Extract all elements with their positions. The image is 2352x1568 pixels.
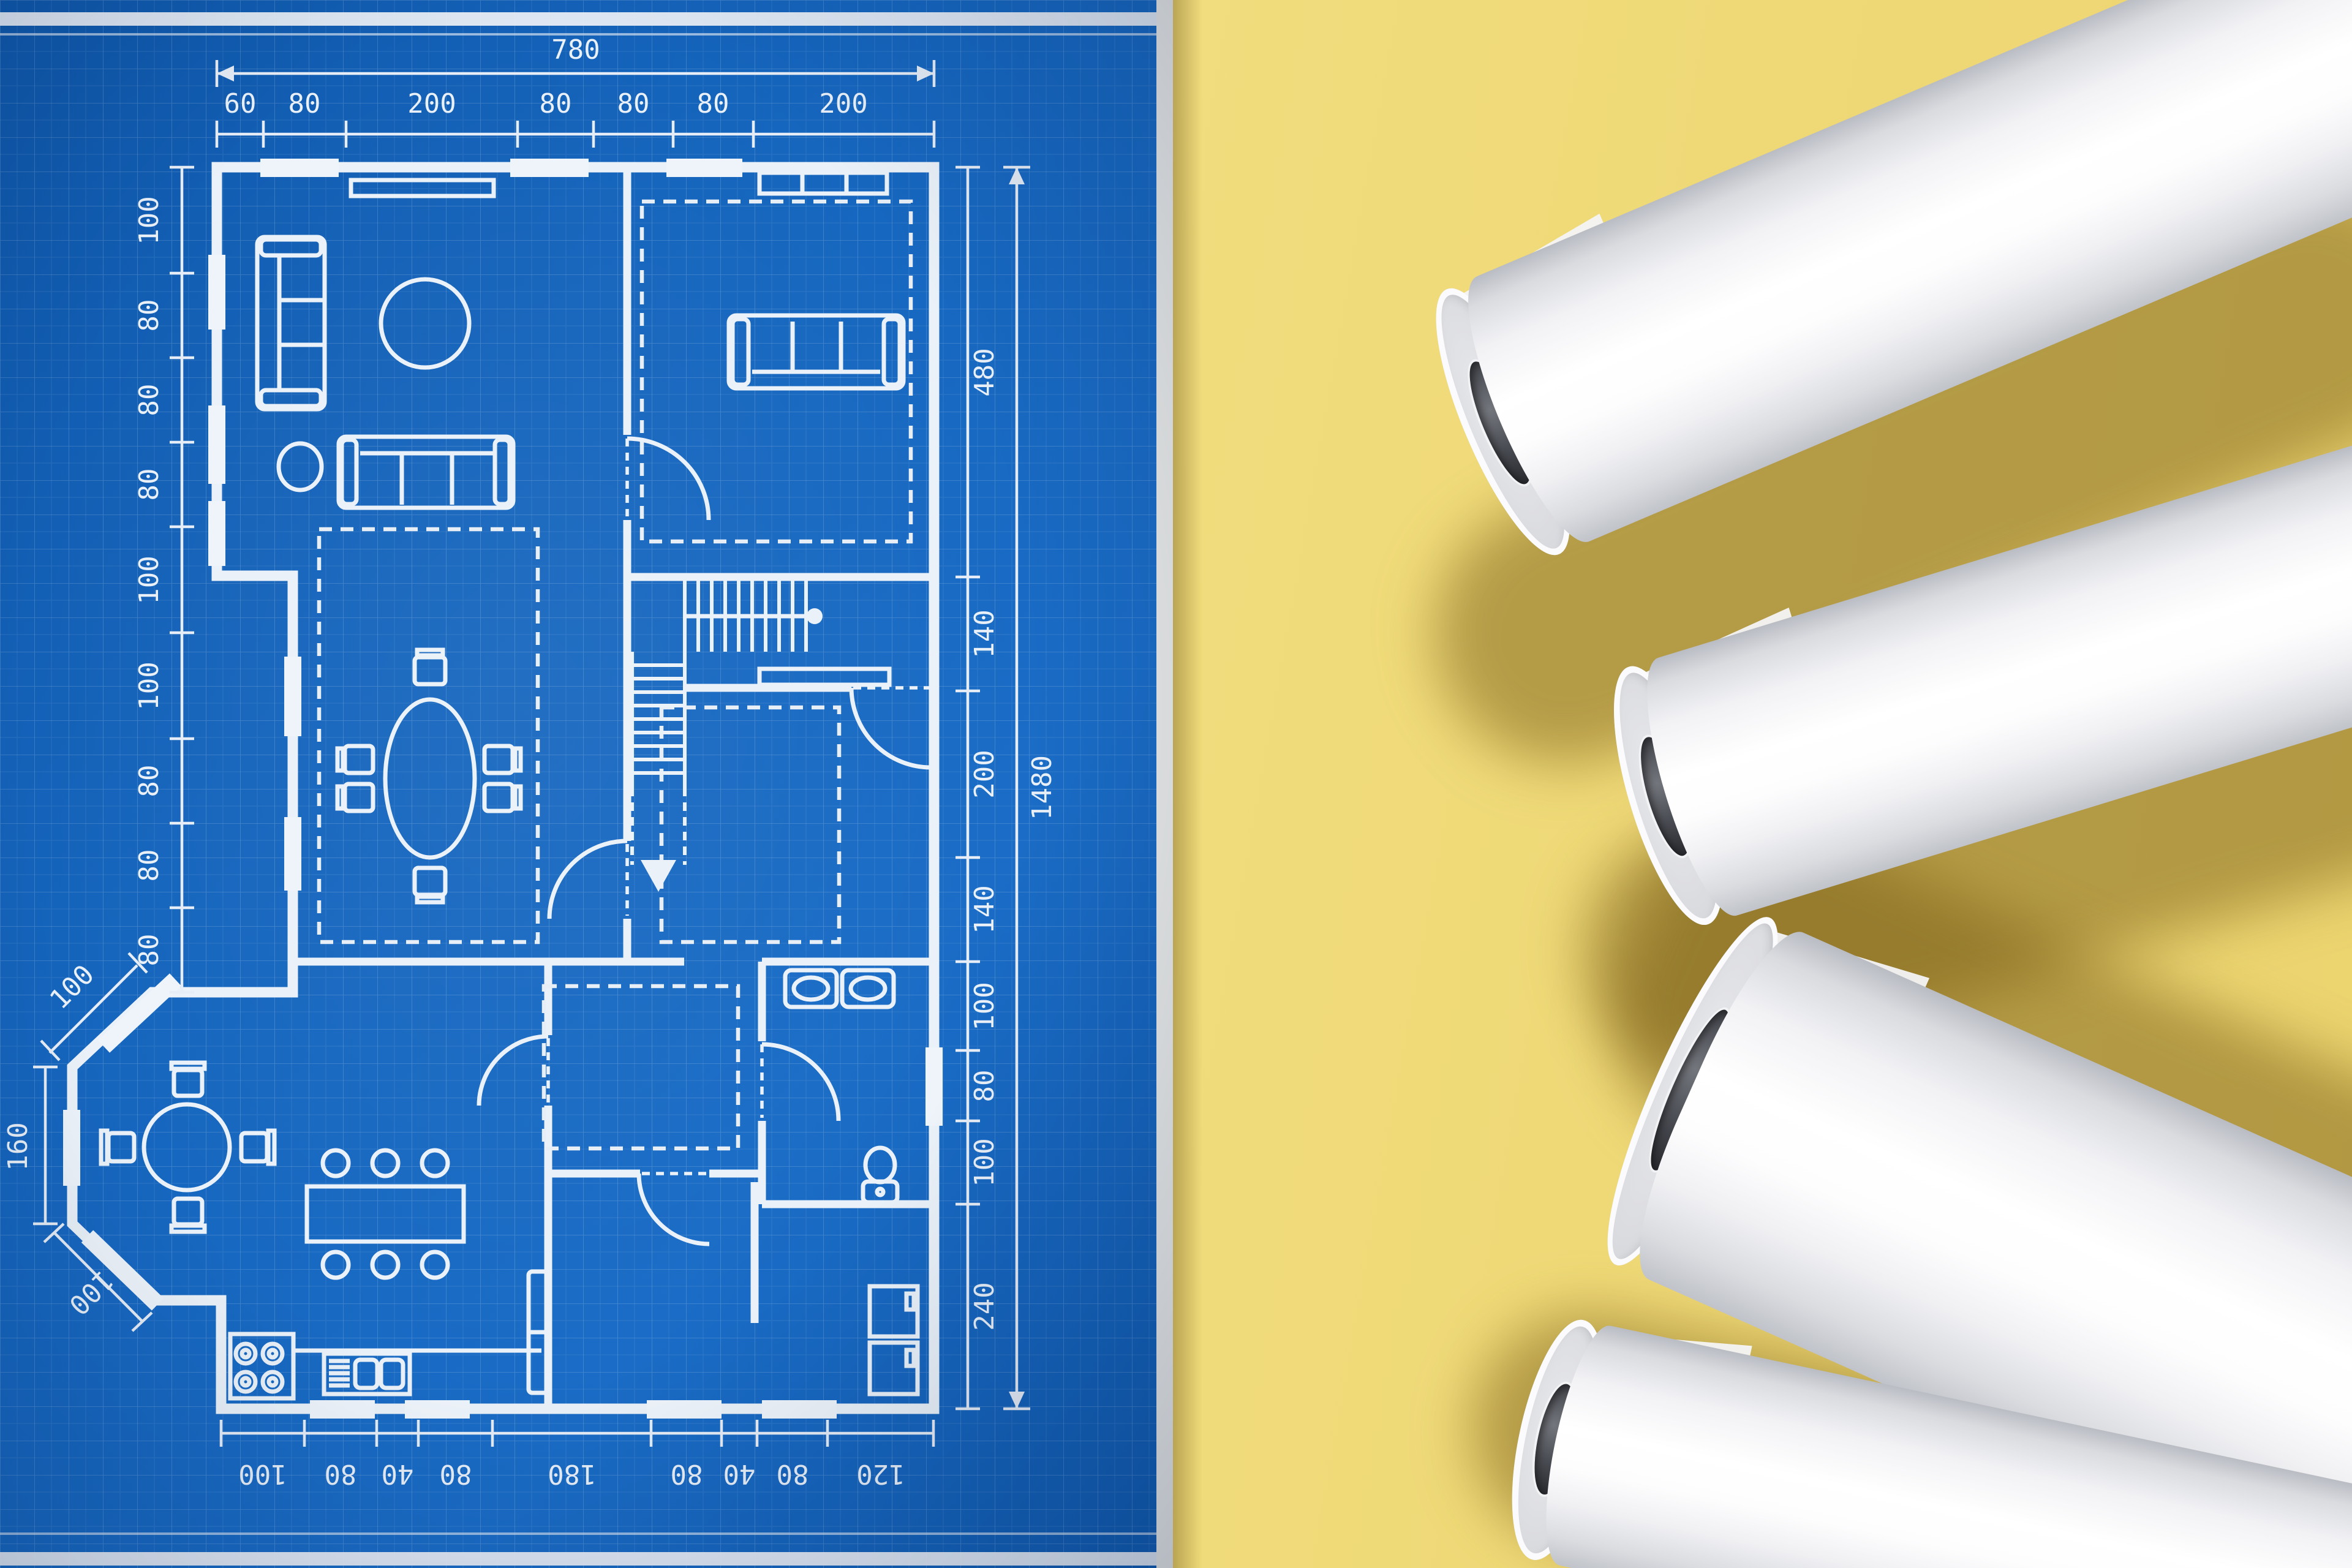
dim-label: 240 bbox=[969, 1282, 1000, 1330]
dim-label: 140 bbox=[969, 885, 1000, 933]
dim-label: 80 bbox=[134, 765, 165, 797]
dim-label: 100 bbox=[134, 556, 165, 604]
dim-label: 100 bbox=[969, 1138, 1000, 1186]
dim-label: 80 bbox=[969, 1070, 1000, 1102]
dim-label: 80 bbox=[617, 88, 650, 119]
dim-label: 40 bbox=[723, 1458, 756, 1490]
dim-label: 80 bbox=[777, 1458, 809, 1490]
dim-label: 100 bbox=[134, 661, 165, 710]
dim-label: 80 bbox=[134, 300, 165, 332]
dim-label: 120 bbox=[856, 1458, 905, 1490]
stair-newel bbox=[807, 608, 823, 624]
dim-label: 80 bbox=[325, 1458, 357, 1490]
photo-scene: 780 60 80 200 80 80 80 200 100 80 80 80 … bbox=[0, 0, 2352, 1568]
dim-label: 80 bbox=[134, 384, 165, 417]
dim-label: 480 bbox=[969, 348, 1000, 396]
dim-label: 100 bbox=[238, 1458, 287, 1490]
dim-label: 80 bbox=[671, 1458, 703, 1490]
dim-label: 200 bbox=[969, 750, 1000, 798]
dim-label: 80 bbox=[134, 850, 165, 882]
dim-label: 180 bbox=[548, 1458, 596, 1490]
blueprint-sheet: 780 60 80 200 80 80 80 200 100 80 80 80 … bbox=[0, 0, 1173, 1568]
dim-label: 80 bbox=[134, 934, 165, 967]
dim-label: 200 bbox=[407, 88, 456, 119]
dim-label: 100 bbox=[134, 196, 165, 244]
sheet-edge-shadow bbox=[1173, 0, 1202, 1568]
dim-label: 80 bbox=[540, 88, 572, 119]
dim-label: 1480 bbox=[1027, 755, 1058, 820]
dim-label: 100 bbox=[969, 982, 1000, 1030]
dim-label: 80 bbox=[440, 1458, 472, 1490]
dim-label: 80 bbox=[134, 469, 165, 501]
dim-label: 80 bbox=[288, 88, 321, 119]
dim-label: 200 bbox=[819, 88, 867, 119]
dim-label: 780 bbox=[551, 34, 600, 66]
dim-label: 60 bbox=[224, 88, 257, 119]
dim-label: 140 bbox=[969, 609, 1000, 658]
dim-label: 40 bbox=[382, 1458, 414, 1490]
dim-label: 80 bbox=[697, 88, 729, 119]
dim-label: 160 bbox=[2, 1122, 34, 1170]
floor-plan-drawing: 780 60 80 200 80 80 80 200 100 80 80 80 … bbox=[0, 0, 1173, 1568]
